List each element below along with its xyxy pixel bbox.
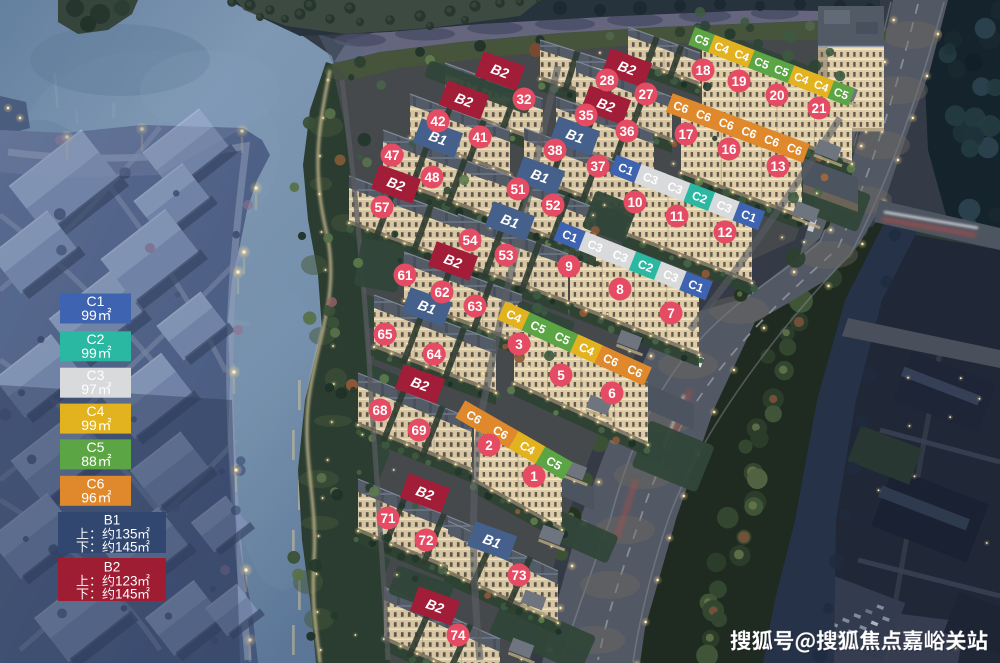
svg-text:64: 64 xyxy=(426,347,442,362)
svg-text:18: 18 xyxy=(695,63,711,78)
svg-text:47: 47 xyxy=(384,148,399,163)
svg-text:1: 1 xyxy=(530,469,538,484)
svg-text:12: 12 xyxy=(717,225,732,240)
svg-text:61: 61 xyxy=(397,268,413,283)
svg-text:21: 21 xyxy=(811,101,827,116)
svg-text:19: 19 xyxy=(731,74,746,89)
svg-text:3: 3 xyxy=(515,337,523,352)
svg-text:65: 65 xyxy=(377,327,393,342)
svg-text:99: 99 xyxy=(81,417,97,433)
svg-text:6: 6 xyxy=(608,386,616,401)
svg-text:52: 52 xyxy=(545,198,560,213)
svg-text:9: 9 xyxy=(565,259,573,274)
svg-text:96: 96 xyxy=(81,489,97,505)
svg-text:57: 57 xyxy=(374,200,389,215)
svg-text:2: 2 xyxy=(485,438,493,453)
svg-text:17: 17 xyxy=(678,127,693,142)
svg-text:48: 48 xyxy=(424,170,440,185)
svg-text:7: 7 xyxy=(667,306,675,321)
svg-text:68: 68 xyxy=(372,403,388,418)
svg-text:36: 36 xyxy=(619,124,635,139)
svg-text:35: 35 xyxy=(578,108,594,123)
svg-text:37: 37 xyxy=(590,159,605,174)
svg-text:97: 97 xyxy=(81,381,97,397)
svg-text:51: 51 xyxy=(510,182,526,197)
svg-text:72: 72 xyxy=(418,533,433,548)
svg-text:88: 88 xyxy=(81,453,97,469)
svg-text:42: 42 xyxy=(430,114,445,129)
svg-text:74: 74 xyxy=(450,628,466,643)
svg-text:145: 145 xyxy=(115,540,138,555)
svg-text:69: 69 xyxy=(411,423,426,438)
svg-text:B1: B1 xyxy=(104,513,121,528)
svg-text:145: 145 xyxy=(115,587,138,602)
svg-text:54: 54 xyxy=(462,233,478,248)
svg-text:5: 5 xyxy=(557,368,565,383)
svg-text:B2: B2 xyxy=(104,560,121,575)
svg-text:32: 32 xyxy=(516,92,531,107)
svg-text:99: 99 xyxy=(81,345,97,361)
svg-text:8: 8 xyxy=(616,282,624,297)
svg-text:71: 71 xyxy=(380,511,396,526)
svg-text:73: 73 xyxy=(511,568,527,583)
svg-text:63: 63 xyxy=(467,299,483,314)
svg-text:99: 99 xyxy=(81,307,97,323)
svg-text:53: 53 xyxy=(498,248,514,263)
svg-text:27: 27 xyxy=(638,87,653,102)
svg-text:10: 10 xyxy=(627,195,642,210)
svg-text:20: 20 xyxy=(769,88,784,103)
svg-text:11: 11 xyxy=(670,209,685,224)
svg-text:13: 13 xyxy=(770,159,786,174)
svg-text:38: 38 xyxy=(547,143,563,158)
svg-text:62: 62 xyxy=(434,285,449,300)
svg-text:16: 16 xyxy=(721,142,737,157)
svg-text:41: 41 xyxy=(472,130,488,145)
svg-text:28: 28 xyxy=(599,73,615,88)
